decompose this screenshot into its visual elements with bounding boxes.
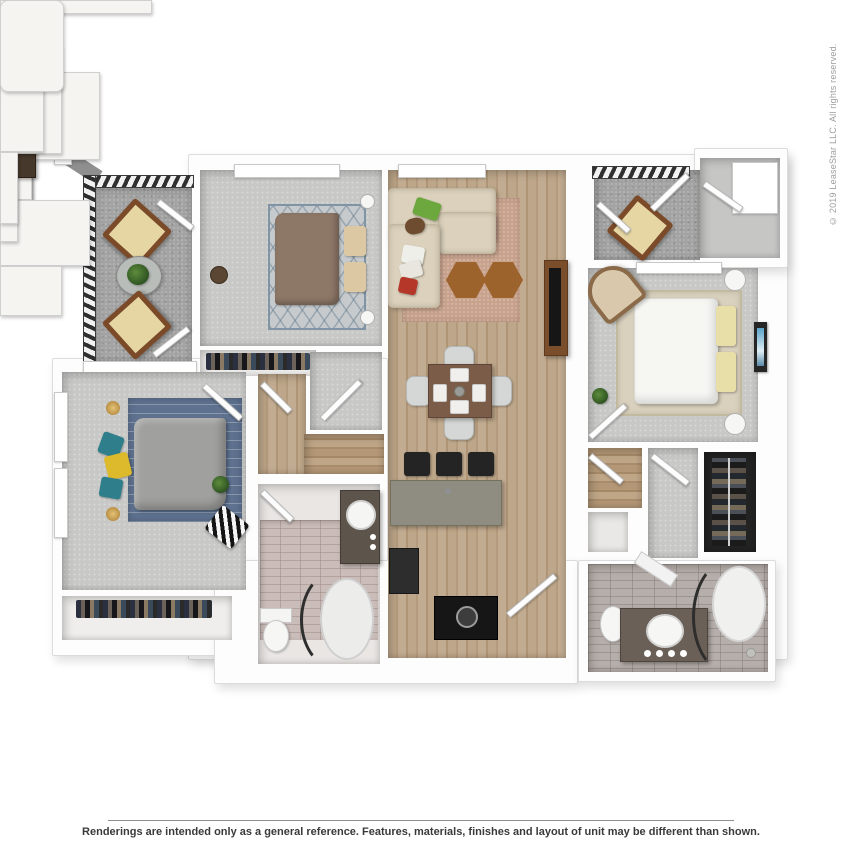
toilet-bowl-icon [263,620,289,652]
footer-divider [108,820,734,821]
master-dresser [0,152,18,224]
disclaimer-text: Renderings are intended only as a genera… [0,826,842,838]
plant-icon [592,388,608,404]
bed-pillow [344,262,366,292]
plant-icon [212,476,229,493]
vanity-sink-icon [346,500,376,530]
place-setting-icon [472,384,486,402]
balcony-left-railing-top-icon [86,175,194,188]
place-setting-icon [450,400,469,414]
place-setting-icon [433,384,447,402]
master-window [54,392,68,462]
dresser-mirror-icon [210,266,228,284]
living-room-window [398,164,486,178]
vanity-knob-icon [680,650,687,657]
centerpiece-icon [454,386,465,397]
hanging-clothes-icon [206,353,310,370]
bed-pillow [344,226,366,256]
place-setting-icon [450,368,469,382]
vanity-knob-icon [370,534,376,540]
vanity-sink-icon [646,614,684,648]
throw-pillow-red [398,276,419,295]
lamp-icon [360,310,375,325]
master-duvet [134,418,226,510]
patio-plant-icon [127,264,149,285]
range-icon [389,548,419,594]
media-console-inlay [549,268,561,346]
shower-rod-icon [300,572,366,668]
bedroom-3-window [636,262,722,274]
vanity-knob-icon [644,650,651,657]
balcony-right-railing-icon [592,166,690,179]
bedroom-2-duvet [275,213,339,305]
hanging-clothes-icon [76,600,212,618]
wall-art-canvas [757,328,764,366]
vanity-knob-icon [668,650,675,657]
bathroom-1 [0,0,64,92]
floor-plan [0,0,842,844]
entry-mat [0,266,62,316]
pot-icon [456,606,478,628]
master-window [54,468,68,538]
washer-niche [588,512,628,552]
lamp-icon [724,413,746,435]
faucet-icon [445,488,451,494]
sectional-sofa-chaise [438,212,496,254]
bedroom-2-window [234,164,340,178]
copyright-watermark: © 2019 LeaseStar LLC. All rights reserve… [828,6,838,226]
lamp-icon [724,269,746,291]
kitchen-island [390,480,502,526]
lamp-icon [360,194,375,209]
bar-stool [468,452,494,476]
gold-lamp-icon [106,401,120,415]
bar-stool [404,452,430,476]
vanity-knob-icon [656,650,663,657]
hall-right-floor [648,448,698,558]
shower-drain-icon [746,648,756,658]
bed-pillow-teal [98,476,123,500]
bed-pillow-yellow [716,352,736,392]
bedroom-3-duvet [634,298,718,404]
bathtub [0,0,64,92]
vanity-knob-icon [370,544,376,550]
bar-stool [436,452,462,476]
bed-pillow-yellow [716,306,736,346]
gold-lamp-icon [106,507,120,521]
closet-rod-icon [728,458,730,546]
hallway-floor-horizontal [304,434,384,474]
